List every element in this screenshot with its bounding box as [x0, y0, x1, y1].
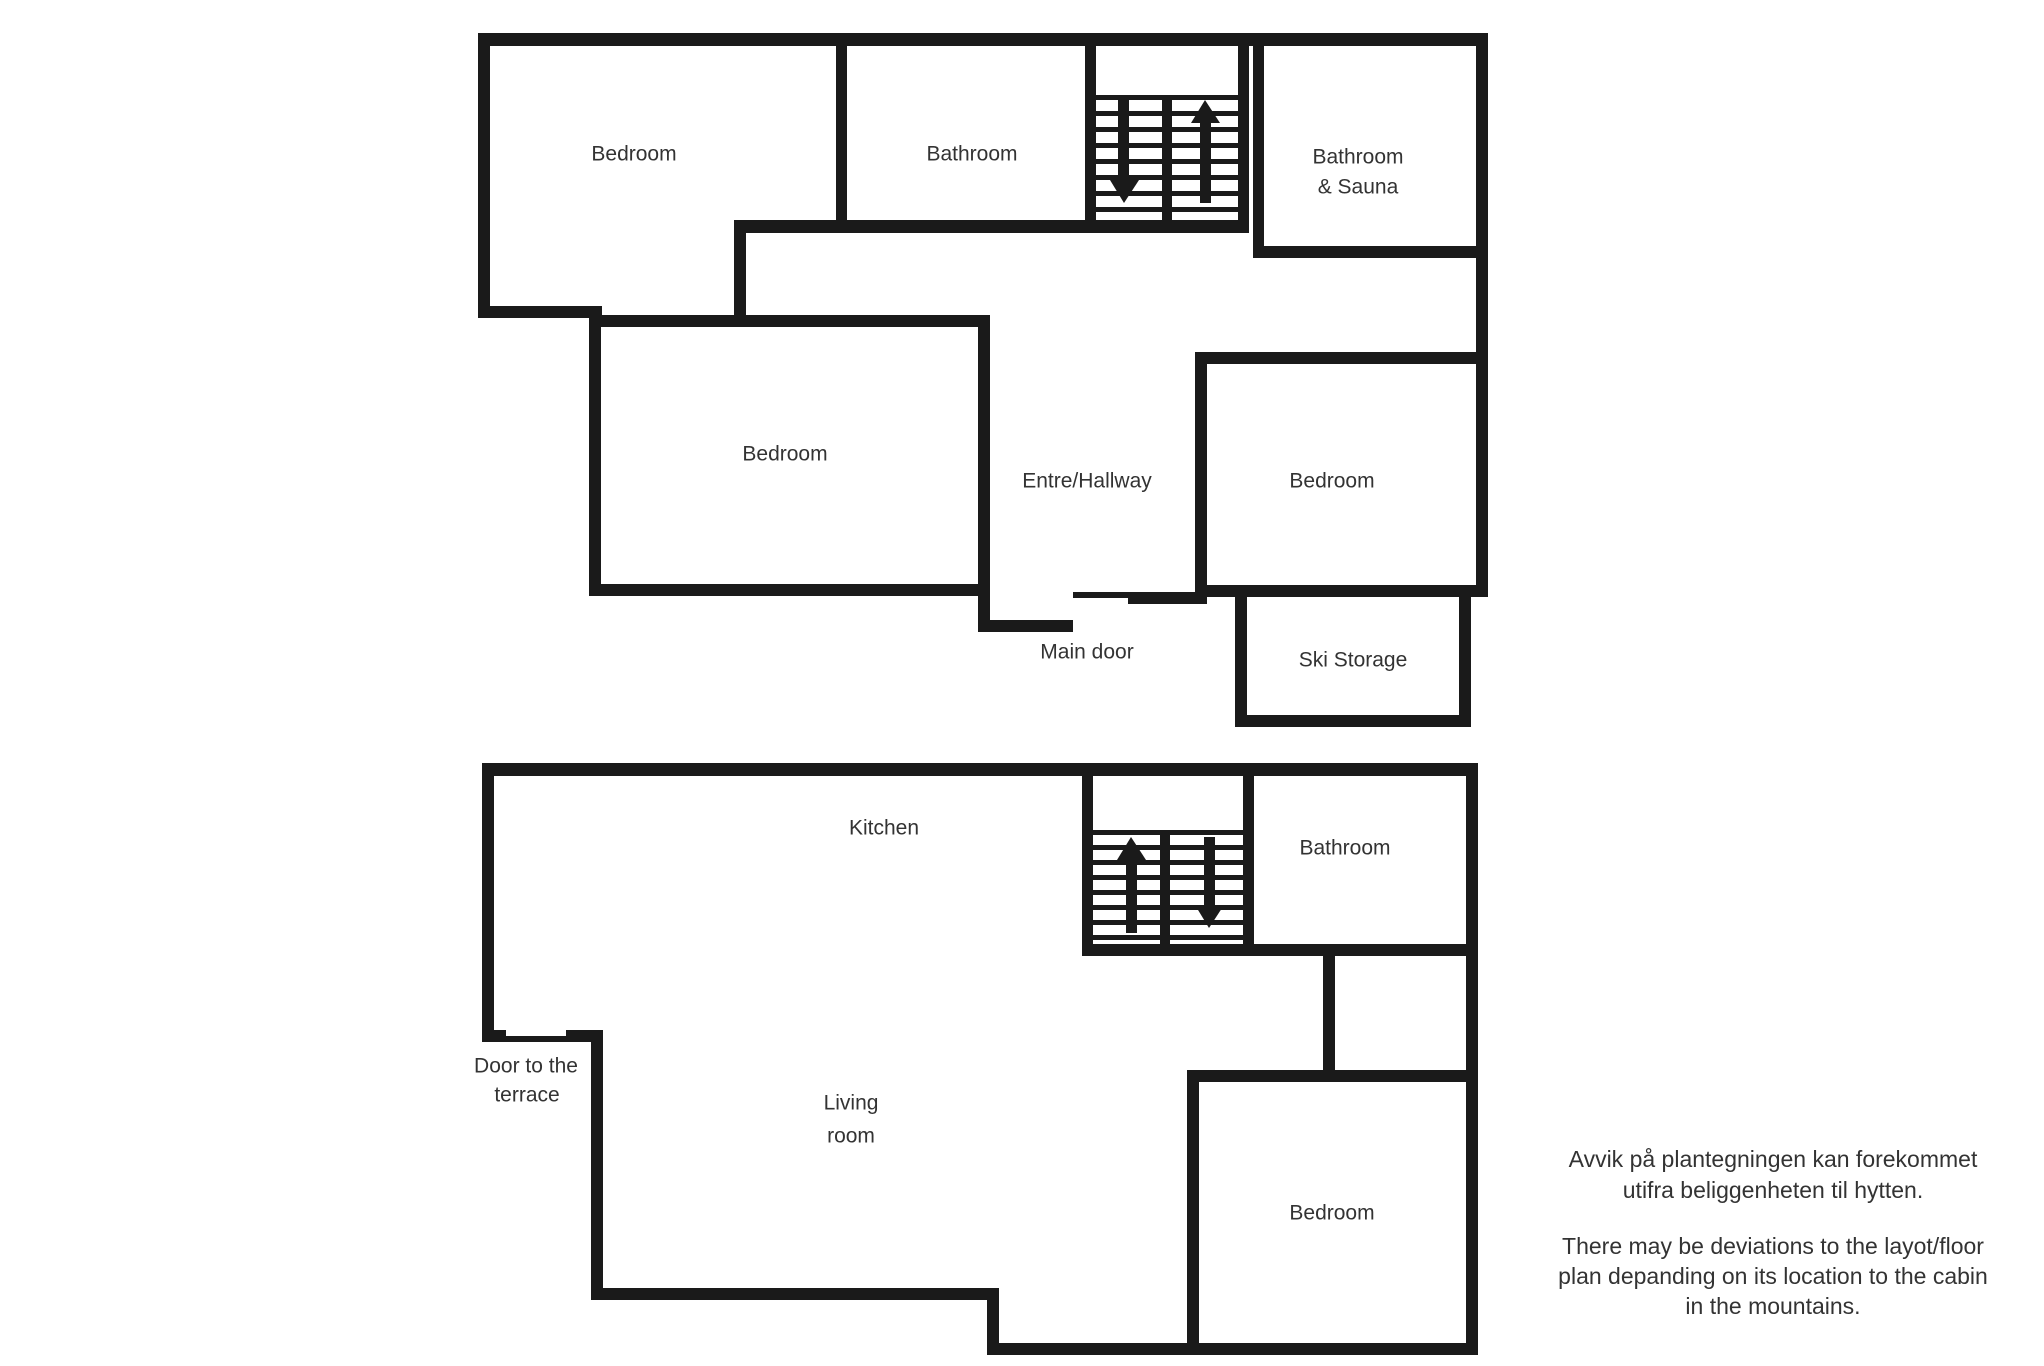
- stair-treads: [1093, 830, 1243, 956]
- arrow-down-icon: [1195, 837, 1224, 928]
- room-label-bathroom-upper: Bathroom: [926, 141, 1017, 166]
- arrow-up-icon: [1117, 837, 1146, 933]
- arrow-shaft: [1204, 837, 1215, 905]
- wall: [1187, 1070, 1478, 1082]
- wall: [1466, 763, 1478, 1355]
- wall: [1323, 944, 1335, 1082]
- room-label-bedroom-top-left: Bedroom: [591, 141, 676, 166]
- room-label-entre-hallway: Entre/Hallway: [1022, 468, 1152, 493]
- label-terrace-door-line1: Door to the: [474, 1053, 578, 1078]
- door-threshold: [506, 1036, 566, 1042]
- arrow-shaft: [1126, 860, 1137, 933]
- wall: [1082, 763, 1093, 956]
- disclaimer-norwegian-line2: utifra beliggenheten til hytten.: [1623, 1177, 1923, 1205]
- wall: [1082, 944, 1478, 956]
- room-label-living-room-line1: Living: [824, 1090, 879, 1115]
- disclaimer-english-line3: in the mountains.: [1685, 1293, 1860, 1321]
- label-main-door: Main door: [1040, 639, 1133, 664]
- wall: [987, 1343, 1478, 1355]
- wall: [482, 763, 1478, 776]
- room-label-bathroom-lower: Bathroom: [1299, 835, 1390, 860]
- disclaimer-norwegian-line1: Avvik på plantegningen kan forekommet: [1569, 1146, 1978, 1174]
- wall: [591, 1030, 603, 1300]
- room-label-bathroom-sauna-line1: Bathroom: [1312, 144, 1403, 169]
- room-label-ski-storage: Ski Storage: [1299, 647, 1408, 672]
- stair-center-rail: [1160, 830, 1170, 956]
- room-label-bathroom-sauna-line2: & Sauna: [1318, 174, 1399, 199]
- wall: [1243, 763, 1254, 956]
- wall: [591, 1288, 999, 1300]
- room-label-living-room-line2: room: [827, 1123, 875, 1148]
- disclaimer-english-line2: plan depanding on its location to the ca…: [1558, 1263, 1988, 1291]
- floor-plan-canvas: Bedroom Bathroom Bathroom & Sauna Bedroo…: [0, 0, 2044, 1366]
- room-label-bedroom-right: Bedroom: [1289, 468, 1374, 493]
- room-label-bedroom-lower: Bedroom: [1289, 1200, 1374, 1225]
- room-label-kitchen: Kitchen: [849, 815, 919, 840]
- room-label-bedroom-middle: Bedroom: [742, 441, 827, 466]
- wall: [1187, 1070, 1199, 1355]
- disclaimer-english-line1: There may be deviations to the layot/flo…: [1562, 1233, 1984, 1261]
- wall: [482, 763, 494, 1042]
- label-terrace-door-line2: terrace: [494, 1082, 559, 1107]
- wall: [482, 1030, 506, 1042]
